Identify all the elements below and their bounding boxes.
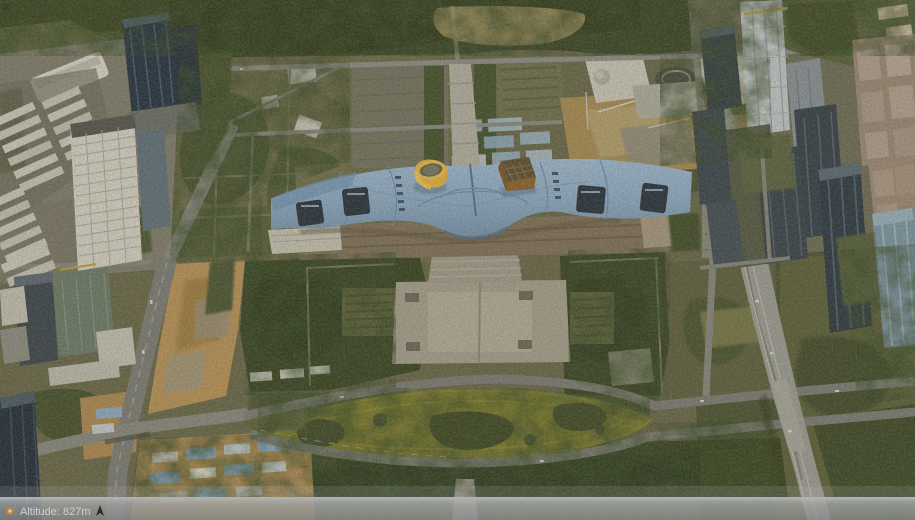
svg-text:Altitude:: Altitude: [20,506,60,518]
svg-text:827m: 827m [63,506,91,518]
